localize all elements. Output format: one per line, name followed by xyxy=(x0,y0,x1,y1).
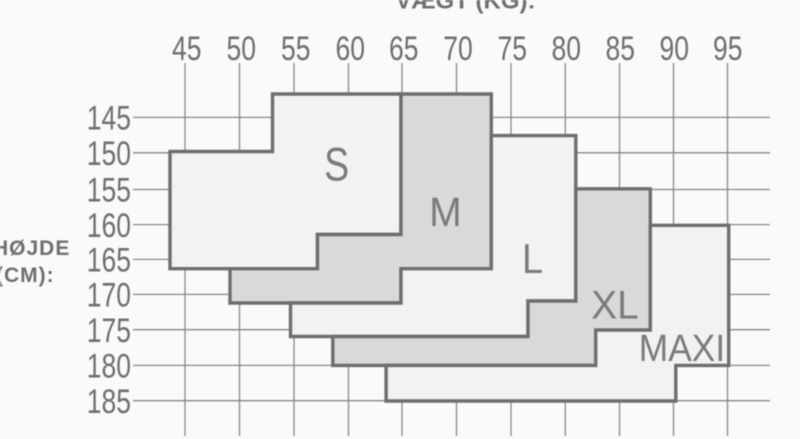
svg-text:85: 85 xyxy=(606,30,636,68)
svg-text:150: 150 xyxy=(87,135,131,173)
svg-text:50: 50 xyxy=(227,30,257,68)
svg-text:HØJDE: HØJDE xyxy=(0,237,70,260)
svg-text:145: 145 xyxy=(87,99,131,137)
svg-text:160: 160 xyxy=(87,207,131,245)
svg-text:170: 170 xyxy=(87,276,131,314)
svg-text:(CM):: (CM): xyxy=(0,264,55,287)
svg-text:65: 65 xyxy=(389,30,419,68)
svg-text:180: 180 xyxy=(87,347,131,385)
svg-text:MAXI: MAXI xyxy=(639,327,725,369)
svg-text:XL: XL xyxy=(591,283,638,328)
svg-text:95: 95 xyxy=(713,30,743,68)
svg-text:70: 70 xyxy=(443,30,473,68)
svg-text:175: 175 xyxy=(87,312,131,350)
svg-text:M: M xyxy=(429,190,461,235)
svg-text:45: 45 xyxy=(172,30,202,68)
svg-text:90: 90 xyxy=(660,30,690,68)
svg-text:60: 60 xyxy=(336,30,366,68)
svg-text:155: 155 xyxy=(87,172,131,210)
svg-text:55: 55 xyxy=(281,30,311,68)
svg-text:80: 80 xyxy=(552,30,582,68)
svg-text:VÆGT (KG):: VÆGT (KG): xyxy=(396,0,536,15)
svg-text:75: 75 xyxy=(498,30,528,68)
svg-text:S: S xyxy=(324,139,349,192)
svg-text:185: 185 xyxy=(87,383,131,421)
svg-text:L: L xyxy=(522,236,543,282)
svg-text:165: 165 xyxy=(87,241,131,279)
